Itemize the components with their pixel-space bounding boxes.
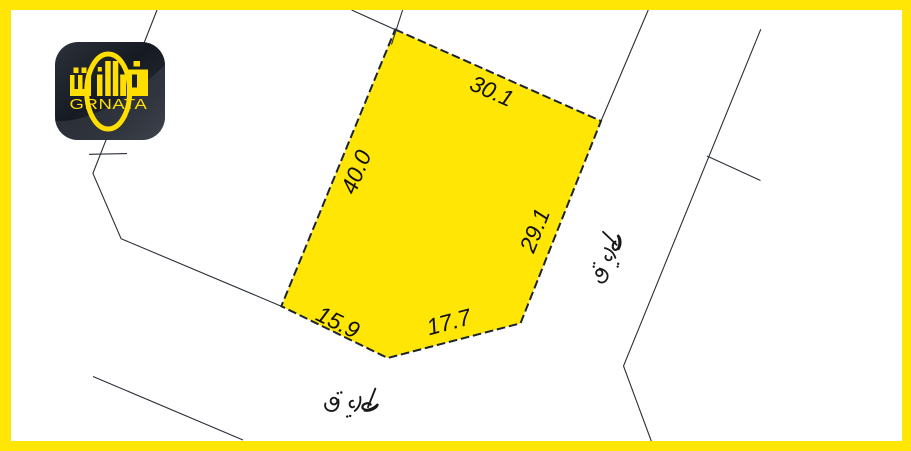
svg-text:GRNATA: GRNATA xyxy=(70,96,148,113)
